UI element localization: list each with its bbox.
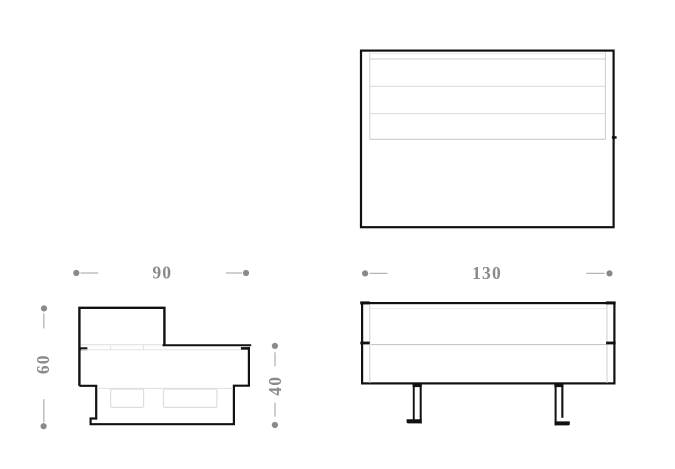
svg-text:130: 130 <box>472 263 502 283</box>
svg-text:40: 40 <box>265 376 285 396</box>
svg-text:60: 60 <box>33 354 53 374</box>
svg-text:90: 90 <box>152 263 172 283</box>
